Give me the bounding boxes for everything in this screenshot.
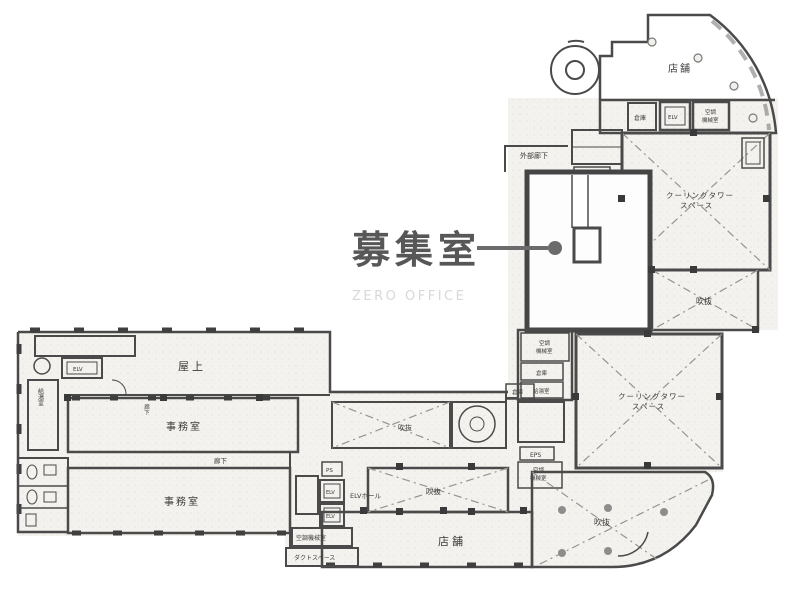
room-label-elv-a: ELV [326, 490, 335, 496]
room-label-cooling1-1: クーリングタワー [666, 190, 734, 200]
room-label-cooling1-2: スペース [680, 201, 713, 210]
room-label-storage-center: 倉庫 [512, 388, 524, 396]
room-label-roof: 屋上 [178, 360, 206, 373]
room-label-corridor-vertical: 廊下 [143, 403, 150, 417]
room-label-elv-top: ELV [668, 115, 678, 121]
room-label-void-center: 吹抜 [398, 423, 412, 432]
room-label-ac-mid-1: 空調 [539, 339, 551, 347]
floor-plan-page: 店舗 倉庫 ELV 空調 機械室 クーリングタワー スペース 吹抜 [0, 0, 787, 591]
room-label-ps: PS [326, 468, 333, 474]
room-label-eps-low: EPS [530, 452, 541, 459]
room-label-pantry-left: 給湯室 [37, 387, 44, 406]
room-label-void-mid: 吹抜 [426, 486, 441, 496]
room-label-cooling2-2: スペース [632, 402, 665, 411]
floor-plan-drawing: 店舗 倉庫 ELV 空調 機械室 クーリングタワー スペース 吹抜 [0, 0, 787, 591]
callout-marker-dot [548, 241, 562, 255]
room-label-void-br: 吹抜 [594, 517, 610, 527]
room-label-storage-mid: 倉庫 [536, 369, 548, 377]
room-label-ac-hall: 空調機械室 [296, 534, 326, 542]
room-label-ac-top-2: 機械室 [702, 116, 719, 124]
watermark: ZERO OFFICE [352, 289, 466, 304]
room-label-corridor: 廊下 [214, 456, 228, 465]
room-label-duct-space: ダクトスペース [294, 554, 335, 562]
region-target-room [527, 172, 650, 330]
spiral-stair-tower [551, 41, 599, 94]
room-label-elv-hall: ELVホール [350, 492, 381, 500]
room-label-office-1: 事務室 [166, 420, 202, 433]
callout-label: 募集室 [352, 228, 481, 272]
room-label-void-right: 吹抜 [696, 296, 712, 306]
room-label-pantry-mid: 給湯室 [533, 387, 550, 395]
room-label-outside-corridor: 外部廊下 [520, 151, 548, 160]
room-label-store-bottom: 店舗 [438, 534, 466, 548]
room-label-cooling2-1: クーリングタワー [618, 391, 686, 401]
room-label-ac-top-1: 空調 [705, 108, 717, 116]
room-label-store-top: 店舗 [668, 62, 692, 75]
room-label-elv-left: ELV [73, 367, 83, 373]
room-label-ac-mid-2: 機械室 [536, 347, 553, 355]
room-label-elv-b: ELV [326, 514, 335, 520]
room-label-office-2: 事務室 [164, 495, 200, 508]
room-label-storage-top: 倉庫 [634, 114, 646, 122]
